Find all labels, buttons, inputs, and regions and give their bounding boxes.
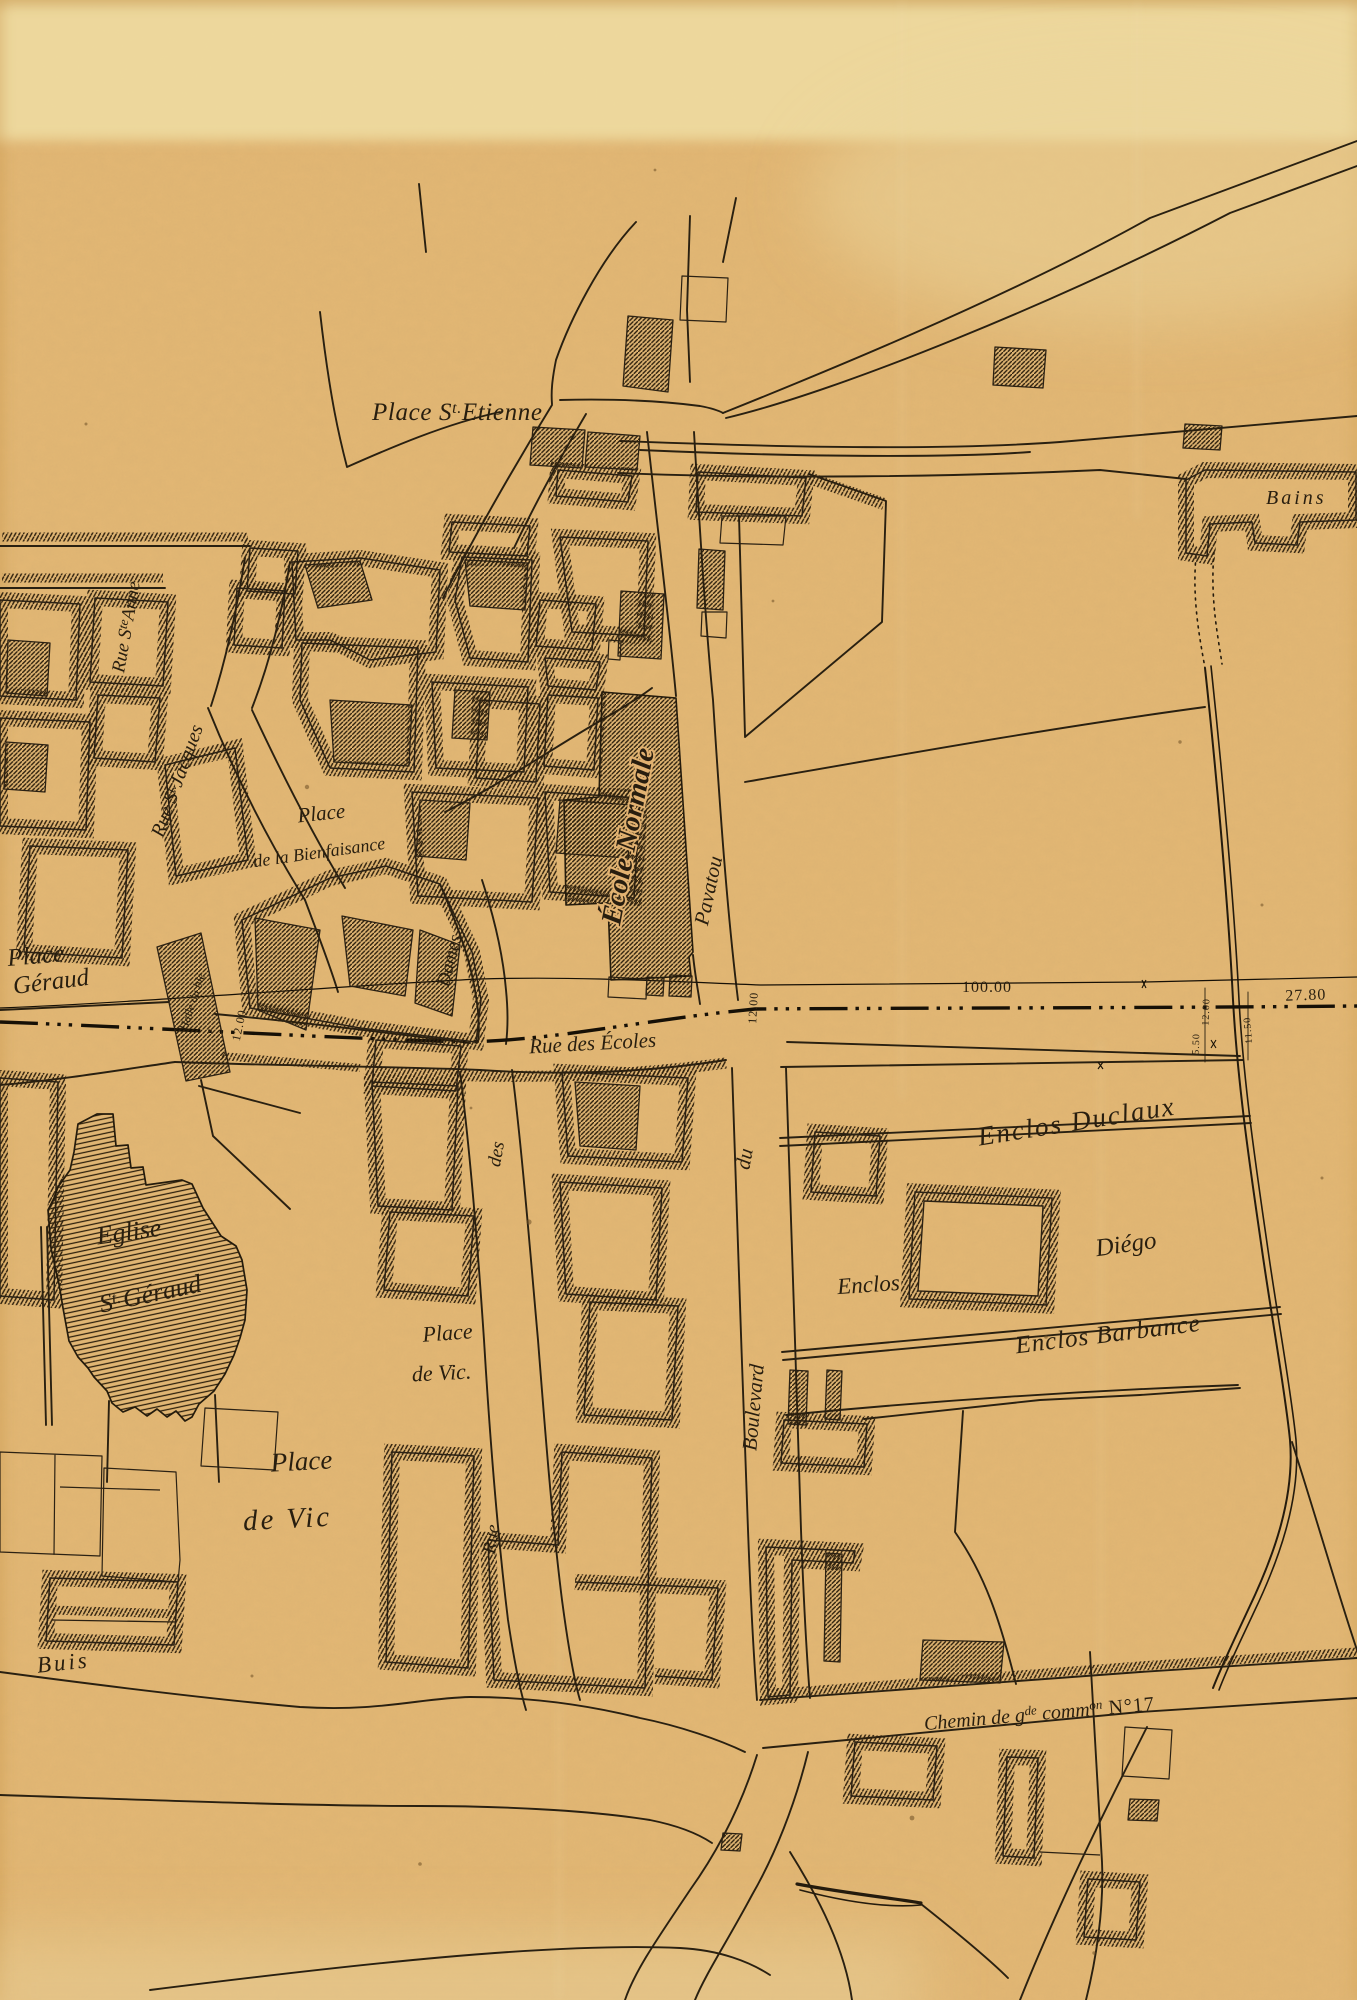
svg-text:des: des xyxy=(484,1140,509,1169)
svg-text:Rue: Rue xyxy=(479,1523,504,1556)
svg-text:du: du xyxy=(730,1146,757,1171)
svg-text:12.00: 12.00 xyxy=(1201,998,1213,1026)
svg-text:27.80: 27.80 xyxy=(1285,986,1327,1004)
svg-text:Place: Place xyxy=(269,1444,333,1477)
svg-text:Place: Place xyxy=(295,799,346,828)
svg-text:11.50: 11.50 xyxy=(1242,1016,1255,1044)
svg-text:Bains: Bains xyxy=(1266,487,1327,509)
svg-text:Enclos: Enclos xyxy=(835,1270,900,1299)
svg-text:de Vic.: de Vic. xyxy=(411,1358,472,1386)
svg-text:de Vic: de Vic xyxy=(242,1501,333,1538)
svg-text:5.50: 5.50 xyxy=(1191,1033,1203,1055)
svg-text:Place: Place xyxy=(421,1318,474,1347)
svg-text:12.00: 12.00 xyxy=(745,991,761,1024)
svg-text:100.00: 100.00 xyxy=(962,979,1012,996)
